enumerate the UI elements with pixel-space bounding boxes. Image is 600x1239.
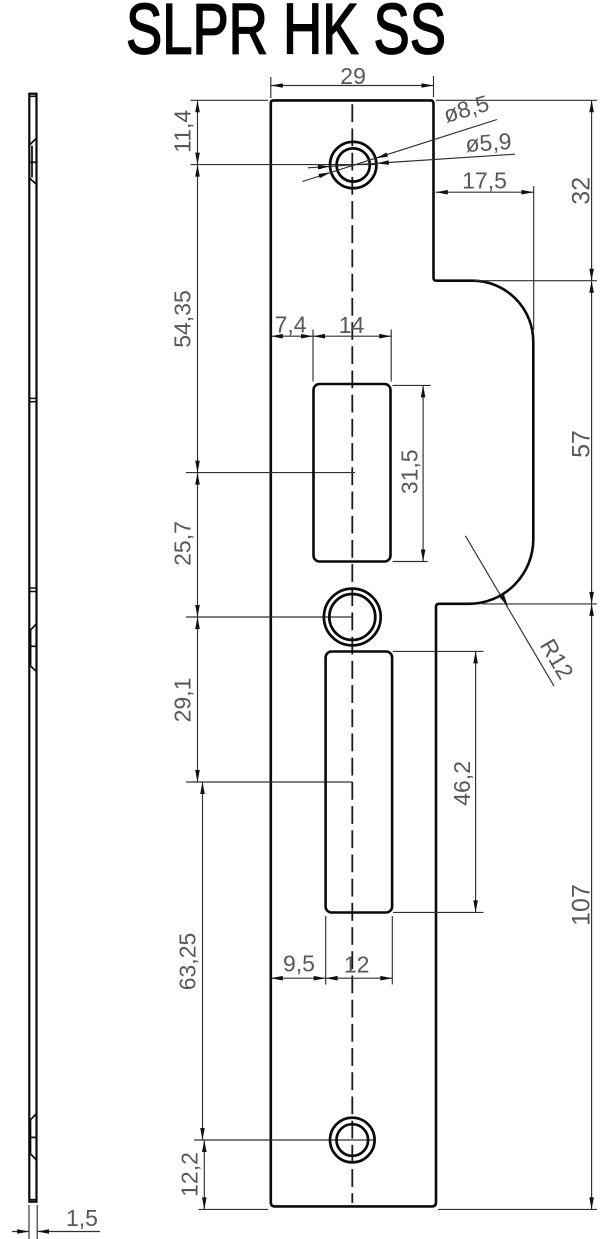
svg-text:29: 29 xyxy=(340,63,366,89)
svg-text:12: 12 xyxy=(344,952,370,978)
svg-text:29,1: 29,1 xyxy=(170,678,196,723)
svg-text:46,2: 46,2 xyxy=(449,761,475,806)
svg-text:31,5: 31,5 xyxy=(397,449,423,494)
svg-text:17,5: 17,5 xyxy=(462,168,507,194)
svg-text:107: 107 xyxy=(568,884,596,926)
svg-text:14: 14 xyxy=(339,312,365,338)
svg-text:ø5,9: ø5,9 xyxy=(465,128,513,157)
svg-text:1,5: 1,5 xyxy=(66,1205,98,1231)
svg-text:9,5: 9,5 xyxy=(283,951,315,977)
svg-text:25,7: 25,7 xyxy=(170,521,196,566)
svg-text:32: 32 xyxy=(568,177,596,205)
svg-text:57: 57 xyxy=(568,430,596,458)
svg-text:12,2: 12,2 xyxy=(177,1152,203,1197)
svg-text:63,25: 63,25 xyxy=(175,933,201,991)
svg-text:7,4: 7,4 xyxy=(275,312,307,338)
svg-text:11,4: 11,4 xyxy=(170,110,196,153)
svg-text:SLPR HK SS: SLPR HK SS xyxy=(126,0,446,70)
svg-text:54,35: 54,35 xyxy=(170,290,196,348)
